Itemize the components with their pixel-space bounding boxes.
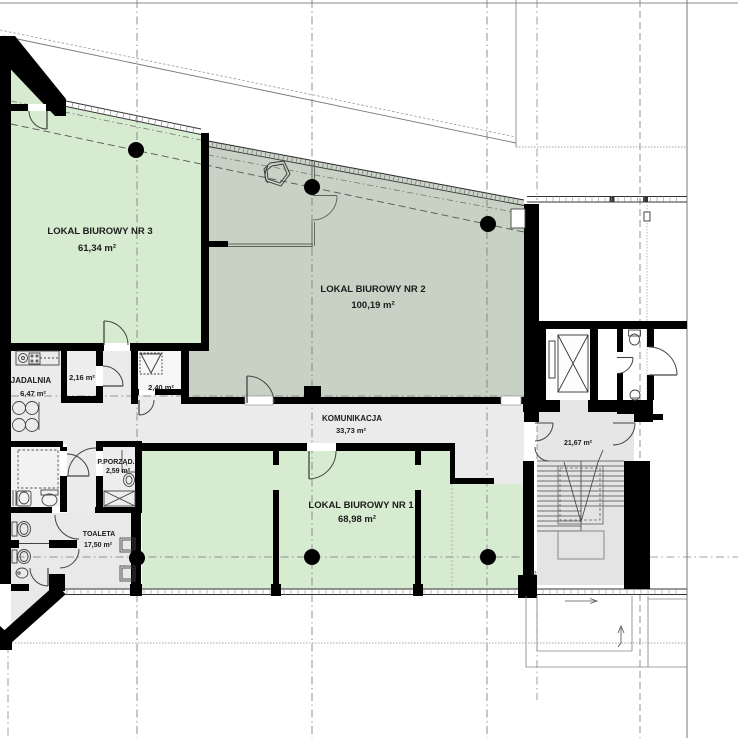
svg-text:LOKAL BIUROWY NR 1: LOKAL BIUROWY NR 1 [308, 500, 414, 511]
svg-text:LOKAL BIUROWY NR 3: LOKAL BIUROWY NR 3 [47, 226, 152, 237]
svg-text:17,50 m²: 17,50 m² [84, 542, 113, 549]
svg-text:100,19 m²: 100,19 m² [351, 300, 394, 311]
svg-text:2,16 m²: 2,16 m² [69, 373, 95, 382]
svg-text:33,73 m²: 33,73 m² [336, 426, 367, 435]
svg-text:23: 23 [531, 571, 537, 577]
svg-text:TOALETA: TOALETA [83, 531, 115, 538]
svg-text:6,47 m²: 6,47 m² [20, 389, 46, 398]
svg-text:LOKAL BIUROWY NR 2: LOKAL BIUROWY NR 2 [320, 284, 425, 295]
svg-text:61,34 m²: 61,34 m² [78, 243, 116, 254]
svg-text:KOMUNIKACJA: KOMUNIKACJA [322, 414, 382, 423]
svg-text:P.PORZĄD.: P.PORZĄD. [97, 459, 134, 466]
svg-text:68,98 m²: 68,98 m² [338, 514, 376, 525]
svg-text:2,40 m²: 2,40 m² [148, 383, 174, 392]
svg-text:JADALNIA: JADALNIA [11, 376, 52, 385]
svg-text:2,59 m²: 2,59 m² [106, 468, 131, 475]
svg-text:21,67 m²: 21,67 m² [564, 440, 593, 447]
